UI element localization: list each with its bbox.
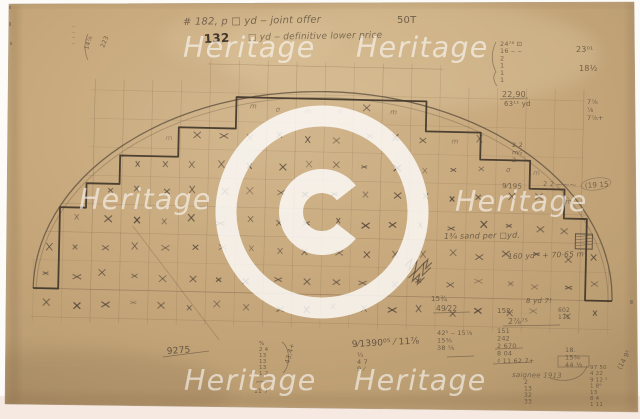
annotation-text: 8 yd 7! xyxy=(526,297,552,305)
svg-text:m: m xyxy=(250,102,257,110)
annotation-text: 2⅞⁷⁵ xyxy=(508,317,528,326)
svg-text:m: m xyxy=(451,138,458,146)
annotation-text: 15¾ xyxy=(431,295,447,303)
annotation-text: (19 15 xyxy=(585,180,609,190)
svg-text:σ: σ xyxy=(506,166,511,174)
annotation-text: 23⁰¹ xyxy=(576,45,593,54)
heritage-watermark-text: Heritage xyxy=(183,31,315,64)
annotation-text: 18½ xyxy=(579,64,598,73)
annotation-text: 63¹¹ yd xyxy=(504,100,531,108)
heritage-watermark-text: Heritage xyxy=(79,183,211,216)
annotation-text: ‒‒‒‒ xyxy=(72,24,75,47)
scanned-drawing-page: mmσmσmmσmm‒‒‒‒14⅞223# 182, p □ yd ‒ join… xyxy=(0,0,640,419)
annotation-text: 152. xyxy=(497,307,513,315)
heritage-archive-scan: mmσmσmmσmm‒‒‒‒14⅞223# 182, p □ yd ‒ join… xyxy=(0,0,640,419)
annotation-text: 22,90 xyxy=(502,90,526,99)
heritage-watermark-text: Heritage xyxy=(455,185,587,218)
svg-text:σ: σ xyxy=(276,106,281,114)
heritage-watermark-text: Heritage xyxy=(354,364,486,397)
annotation-text: 1¾ sand per □yd. xyxy=(444,231,520,241)
svg-text:m: m xyxy=(166,134,173,142)
annotation-text: 602171 xyxy=(558,307,570,321)
annotation-text: 49⁄22 xyxy=(436,304,457,313)
svg-text:m: m xyxy=(533,169,540,177)
heritage-watermark-text: Heritage xyxy=(184,364,316,397)
heritage-watermark-text: Heritage xyxy=(356,31,488,64)
annotation-text: saignee 1913 xyxy=(512,371,562,380)
svg-text:m: m xyxy=(390,108,397,116)
annotation-text: 50T xyxy=(397,15,417,26)
